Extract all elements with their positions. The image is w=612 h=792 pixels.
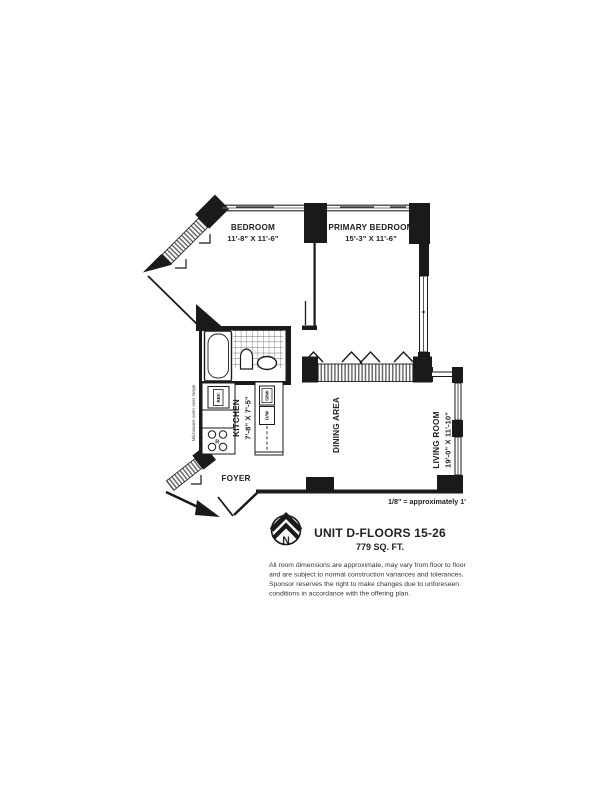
compass-north-label: N bbox=[282, 535, 290, 547]
north-compass-icon: N bbox=[272, 516, 301, 547]
primary-bedroom-window bbox=[420, 276, 428, 352]
bathroom-top-wall bbox=[201, 326, 291, 331]
unit-area: 779 SQ. FT. bbox=[356, 542, 404, 552]
range-letter: R bbox=[215, 440, 219, 446]
microwave-note: Microwave oven over range bbox=[191, 384, 196, 441]
entrance-arrow bbox=[195, 500, 220, 517]
disclaimer-line-2: and are subject to normal construction v… bbox=[269, 572, 464, 579]
bottom-wall bbox=[256, 490, 463, 494]
bedroom-divider-wall bbox=[314, 243, 316, 330]
diagonal-window-top-left bbox=[140, 195, 229, 284]
primary-closet bbox=[302, 352, 432, 383]
bottom-wall-block-1 bbox=[306, 477, 334, 490]
disclaimer-line-4: conditions in accordance with the offeri… bbox=[269, 591, 410, 598]
interior-walls bbox=[302, 243, 317, 330]
bathtub-icon bbox=[205, 331, 232, 381]
bedroom-label: BEDROOM bbox=[231, 223, 275, 232]
living-step-wall bbox=[431, 372, 455, 377]
closet-door-marks bbox=[304, 352, 413, 362]
foyer-window-jamb bbox=[191, 475, 201, 484]
exterior-walls bbox=[140, 195, 463, 494]
living-room-dims: 19'-0" X 11'-10" bbox=[444, 412, 453, 468]
kitchen-dims: 7'-8" X 7'-5" bbox=[244, 396, 253, 440]
ref-label: REF. bbox=[216, 393, 221, 403]
diagonal-return-wall bbox=[148, 276, 204, 331]
entrance-wall bbox=[166, 492, 200, 508]
dining-area-label: DINING AREA bbox=[332, 397, 341, 453]
disclaimer-line-1: All room dimensions are approximate, may… bbox=[269, 562, 467, 569]
primary-bedroom-label: PRIMARY BEDROOM bbox=[328, 223, 413, 232]
toilet-icon bbox=[241, 349, 253, 369]
sink-label: SINK bbox=[265, 389, 270, 401]
unit-title: UNIT D-FLOORS 15-26 bbox=[314, 526, 446, 540]
entrance-wall-right bbox=[234, 492, 258, 515]
scale-note: 1/8" = approximately 1' bbox=[388, 497, 466, 506]
living-room-label: LIVING ROOM bbox=[432, 411, 441, 468]
disclaimer-line-3: Sponsor reserves the right to make chang… bbox=[269, 581, 459, 588]
dw-label: D/W bbox=[265, 410, 270, 420]
kitchen-label: KITCHEN bbox=[232, 399, 241, 437]
disclaimer-text: All room dimensions are approximate, may… bbox=[269, 562, 467, 598]
living-window-2 bbox=[455, 437, 461, 475]
closet-hatch bbox=[318, 364, 413, 382]
bathroom-sink-icon bbox=[258, 357, 277, 370]
entry-door-leaf bbox=[218, 497, 233, 516]
column-between-bedrooms bbox=[304, 203, 327, 243]
floor-plan-page: REF. R SINK D/W Microwave oven over rang… bbox=[0, 0, 612, 792]
living-corner-top bbox=[452, 367, 463, 383]
bedroom-dims: 11'-8" X 11'-6" bbox=[227, 234, 278, 243]
bottom-wall-block-2 bbox=[437, 475, 462, 490]
primary-bedroom-dims: 15'-3" X 11'-6" bbox=[345, 234, 397, 243]
right-wall-upper bbox=[419, 244, 429, 276]
living-window-1 bbox=[455, 383, 461, 420]
bedroom-wall-stub bbox=[302, 326, 317, 331]
living-mullion bbox=[452, 420, 463, 437]
foyer-label: FOYER bbox=[221, 474, 250, 483]
bathroom-right-wall bbox=[286, 326, 292, 385]
bathroom-area bbox=[201, 326, 291, 385]
floor-plan: REF. R SINK D/W Microwave oven over rang… bbox=[0, 0, 612, 792]
